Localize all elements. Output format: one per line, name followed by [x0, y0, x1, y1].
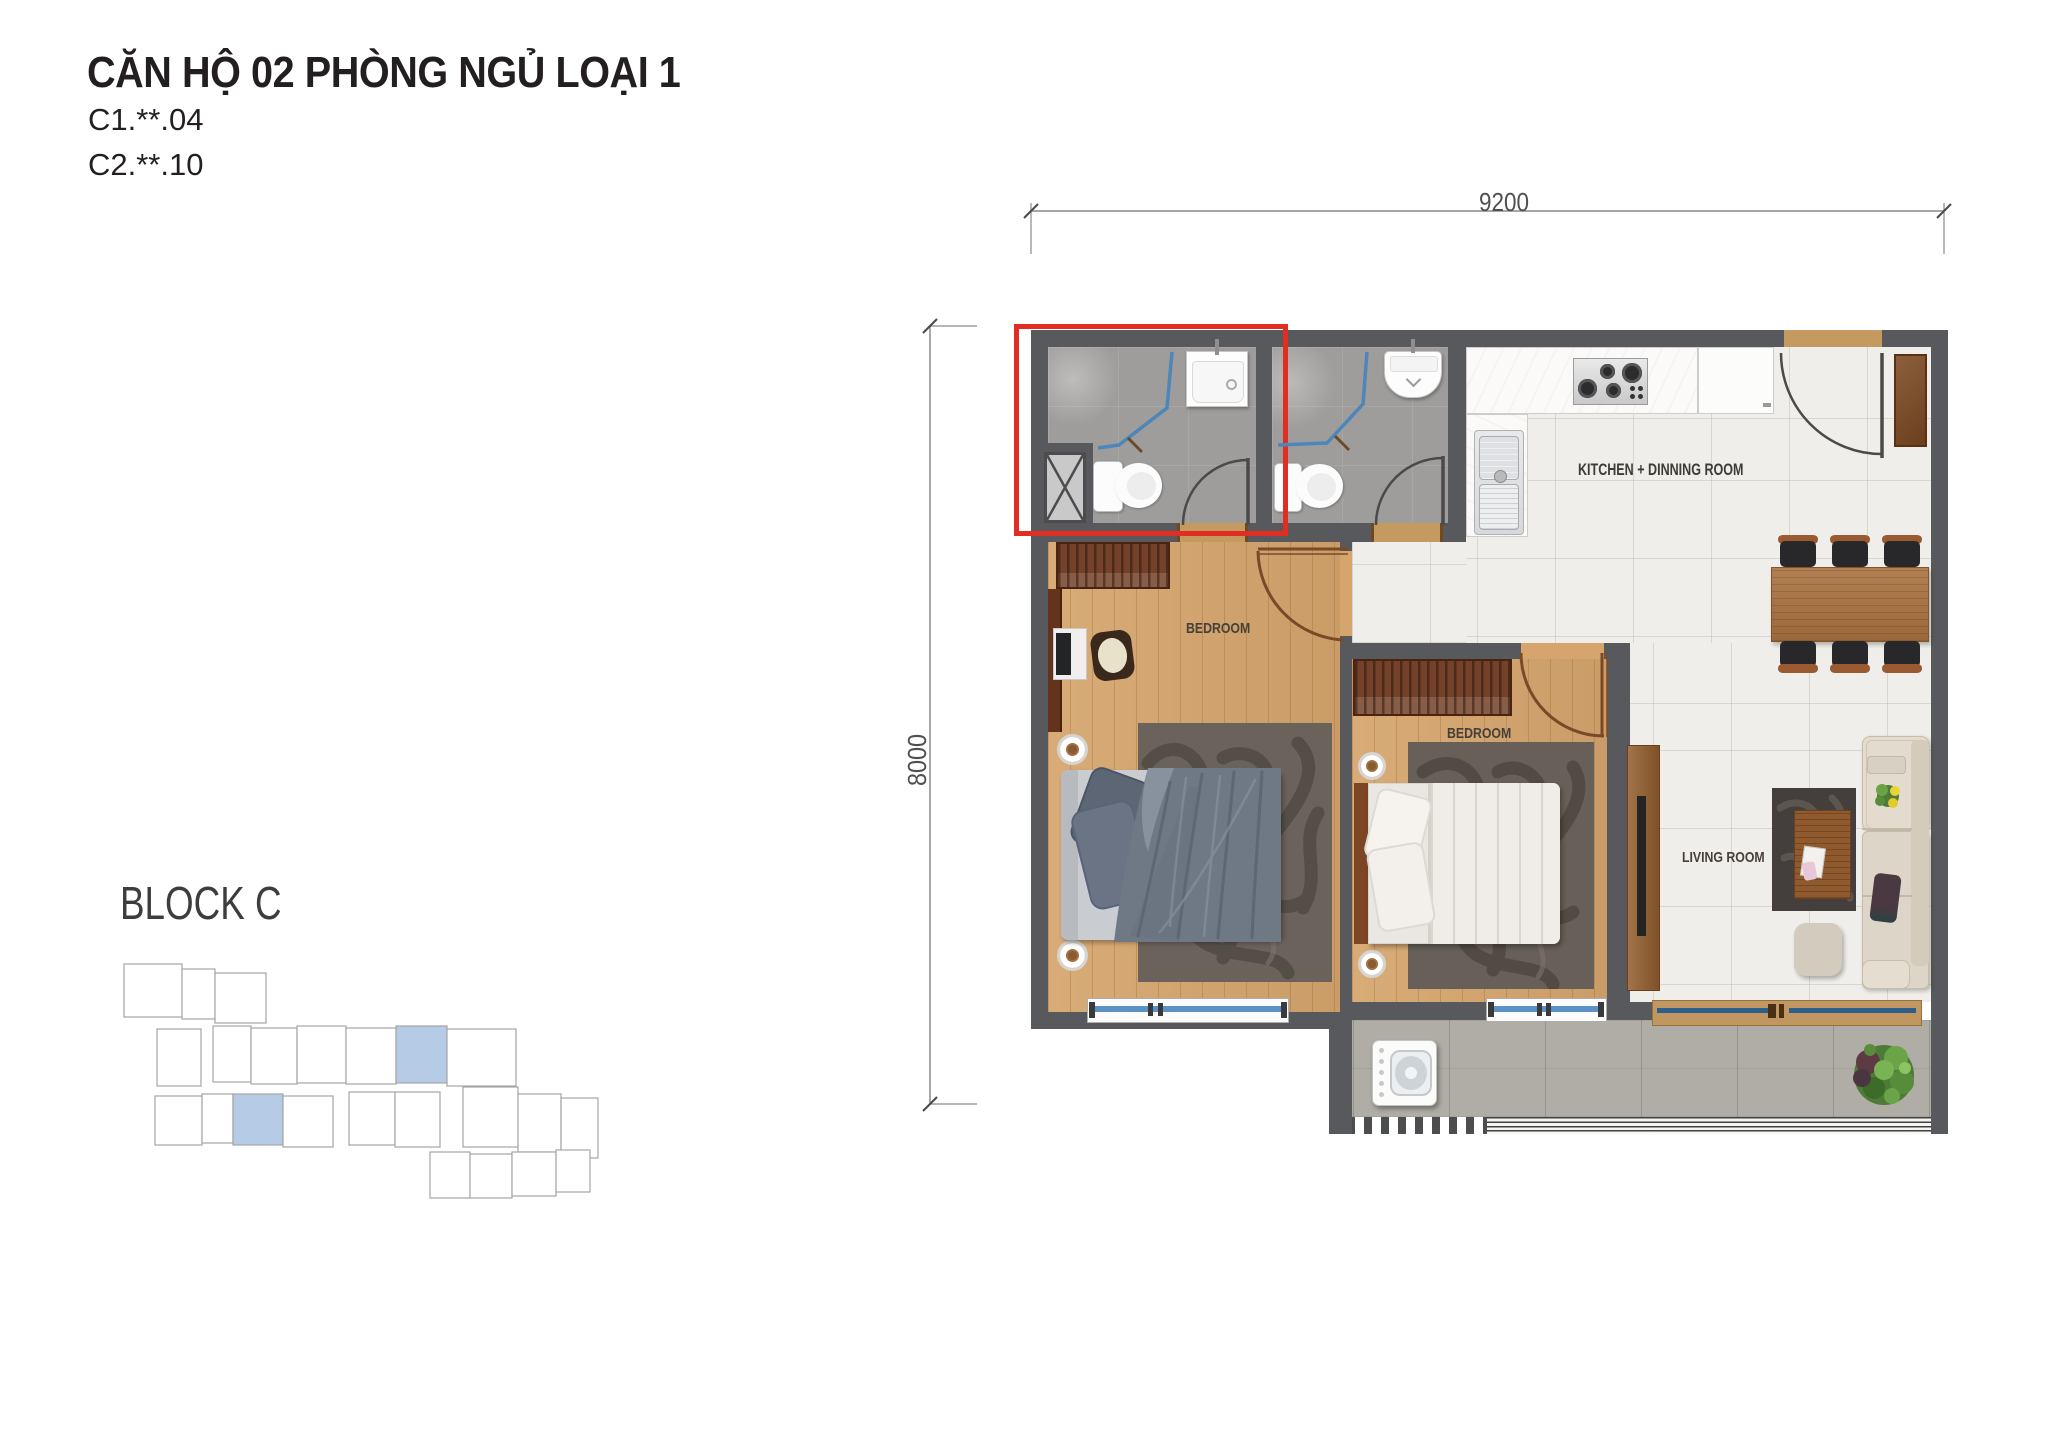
svg-text:8000: 8000: [902, 734, 932, 786]
svg-text:9200: 9200: [1479, 187, 1529, 217]
